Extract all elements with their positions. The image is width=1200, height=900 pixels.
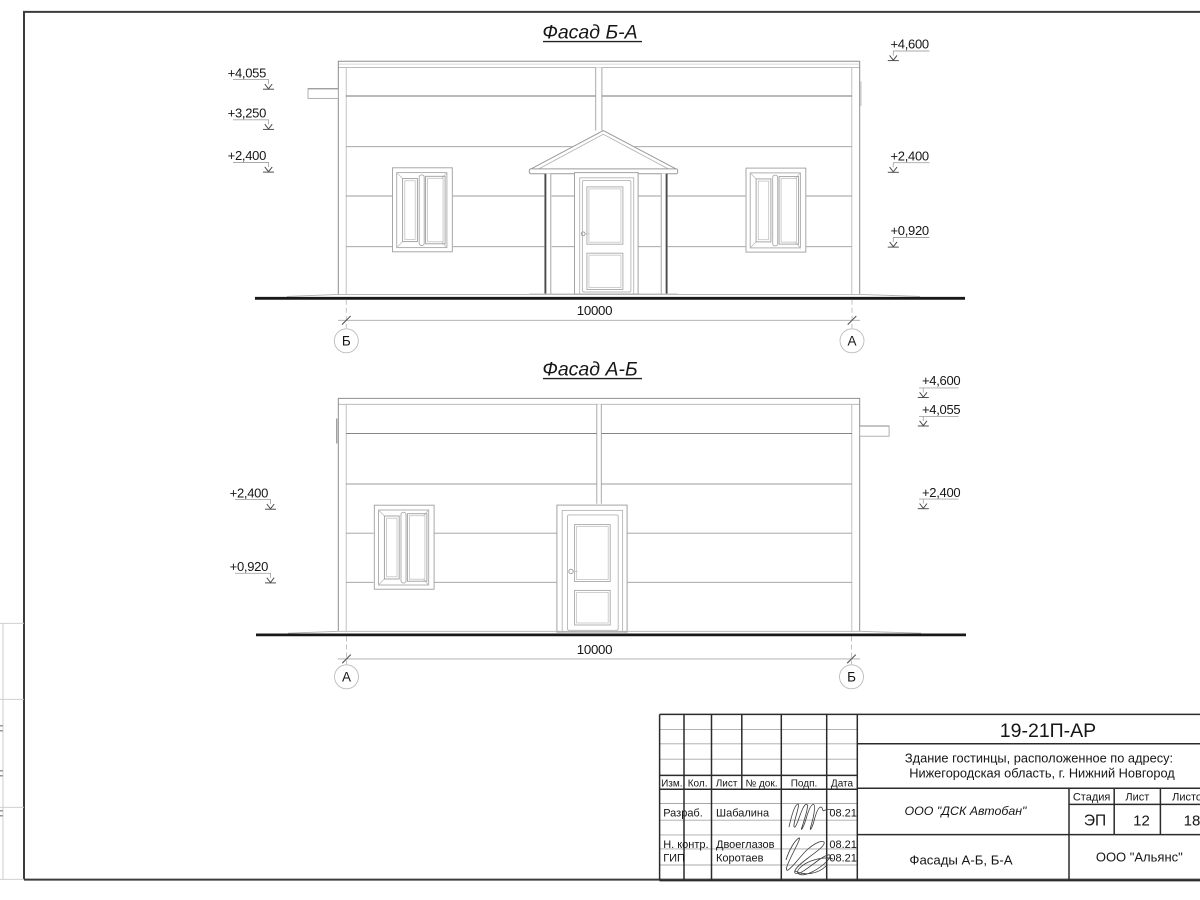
svg-text:+2,400: +2,400 bbox=[228, 148, 266, 163]
svg-text:+2,400: +2,400 bbox=[230, 485, 268, 500]
svg-text:+0,920: +0,920 bbox=[891, 223, 929, 238]
svg-text:08.21: 08.21 bbox=[829, 839, 857, 851]
svg-text:Двоеглазов: Двоеглазов bbox=[716, 839, 775, 851]
svg-text:Шабалина: Шабалина bbox=[716, 808, 770, 820]
svg-text:А: А bbox=[847, 334, 856, 349]
svg-text:Дата: Дата bbox=[831, 778, 854, 789]
svg-text:+2,400: +2,400 bbox=[891, 148, 929, 163]
svg-text:А: А bbox=[342, 670, 351, 685]
svg-text:+4,055: +4,055 bbox=[922, 402, 960, 417]
svg-text:08.21: 08.21 bbox=[829, 852, 857, 864]
svg-text:Фасад А-Б: Фасад А-Б bbox=[542, 358, 638, 380]
svg-text:Стадия: Стадия bbox=[1073, 792, 1111, 804]
svg-text:ООО "Альянс": ООО "Альянс" bbox=[1096, 850, 1183, 865]
svg-text:12: 12 bbox=[1133, 812, 1150, 829]
svg-text:Б: Б bbox=[847, 670, 856, 685]
svg-text:Разраб.: Разраб. bbox=[663, 808, 703, 820]
svg-text:+4,055: +4,055 bbox=[228, 65, 266, 80]
svg-text:Коротаев: Коротаев bbox=[716, 852, 764, 864]
svg-text:ЭП: ЭП bbox=[1084, 812, 1106, 829]
svg-text:№ док.: № док. bbox=[745, 778, 777, 789]
svg-text:Здание гостинцы, расположенное: Здание гостинцы, расположенное по адресу… bbox=[905, 751, 1173, 766]
svg-text:Б: Б bbox=[342, 334, 351, 349]
svg-text:10000: 10000 bbox=[577, 642, 612, 657]
svg-text:18: 18 bbox=[1184, 812, 1200, 829]
svg-text:+0,920: +0,920 bbox=[230, 559, 268, 574]
svg-text:Лист: Лист bbox=[716, 778, 738, 789]
svg-text:Фасад Б-А: Фасад Б-А bbox=[542, 22, 637, 44]
svg-text:+3,250: +3,250 bbox=[228, 106, 266, 121]
svg-text:ООО "ДСК Автобан": ООО "ДСК Автобан" bbox=[905, 804, 1028, 818]
svg-text:Нижегородская область, г. Нижн: Нижегородская область, г. Нижний Новгоро… bbox=[909, 765, 1175, 780]
svg-text:+4,600: +4,600 bbox=[891, 37, 929, 52]
svg-text:Листов: Листов bbox=[1172, 792, 1200, 804]
svg-text:Лист: Лист bbox=[1125, 792, 1149, 804]
svg-text:ГИП: ГИП bbox=[663, 852, 685, 864]
svg-text:19-21П-АР: 19-21П-АР bbox=[1000, 720, 1096, 742]
svg-text:Подп.: Подп. bbox=[791, 778, 818, 789]
svg-text:Кол.: Кол. bbox=[688, 778, 708, 789]
svg-text:+2,400: +2,400 bbox=[922, 485, 960, 500]
svg-text:Изм.: Изм. bbox=[661, 778, 682, 789]
svg-text:10000: 10000 bbox=[577, 303, 612, 318]
svg-text:Фасады А-Б, Б-А: Фасады А-Б, Б-А bbox=[909, 852, 1012, 867]
svg-text:Н. контр.: Н. контр. bbox=[663, 839, 708, 851]
svg-text:+4,600: +4,600 bbox=[922, 373, 960, 388]
